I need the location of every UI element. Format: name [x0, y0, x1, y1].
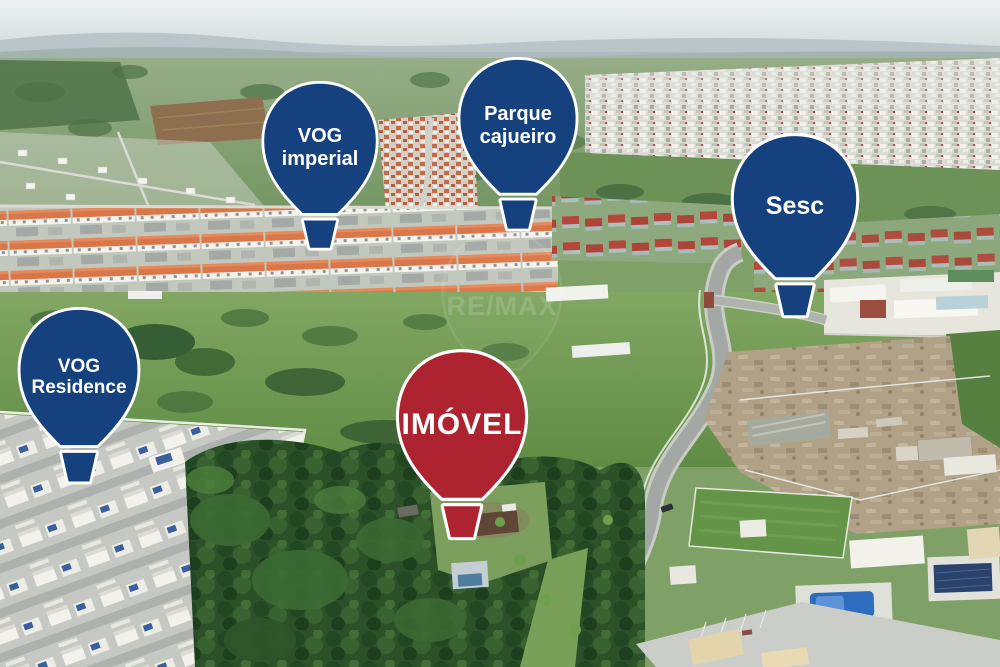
- marker-label: Sesc: [735, 140, 855, 273]
- brick-tower: [704, 292, 714, 308]
- marker-vog-residence: VOG Residence: [14, 306, 144, 488]
- clubhouse: [849, 535, 925, 568]
- marker-imovel: IMÓVEL: [392, 348, 532, 544]
- marker-label-line: IMÓVEL: [401, 408, 522, 442]
- marker-label: Parque cajueiro: [462, 63, 575, 188]
- marker-label-line: cajueiro: [480, 126, 557, 148]
- marker-label-line: VOG: [298, 125, 342, 147]
- marker-label-line: Sesc: [766, 192, 824, 220]
- marker-label-line: VOG: [58, 356, 100, 377]
- marker-vog-imperial: VOG imperial: [258, 80, 382, 254]
- marker-parque-cajueiro: Parque cajueiro: [454, 56, 582, 235]
- marker-sesc: Sesc: [727, 132, 863, 322]
- marker-label-line: Residence: [31, 377, 126, 398]
- marker-label-line: imperial: [282, 148, 359, 170]
- marker-label-line: Parque: [484, 103, 552, 125]
- aerial-photo-scene: RE/MAX VOG imperial Parque cajueiro Sesc: [0, 0, 1000, 667]
- marker-label: VOG imperial: [265, 87, 374, 209]
- fenced-field: [689, 488, 852, 558]
- marker-label: VOG Residence: [22, 313, 136, 440]
- marker-label: IMÓVEL: [400, 356, 523, 493]
